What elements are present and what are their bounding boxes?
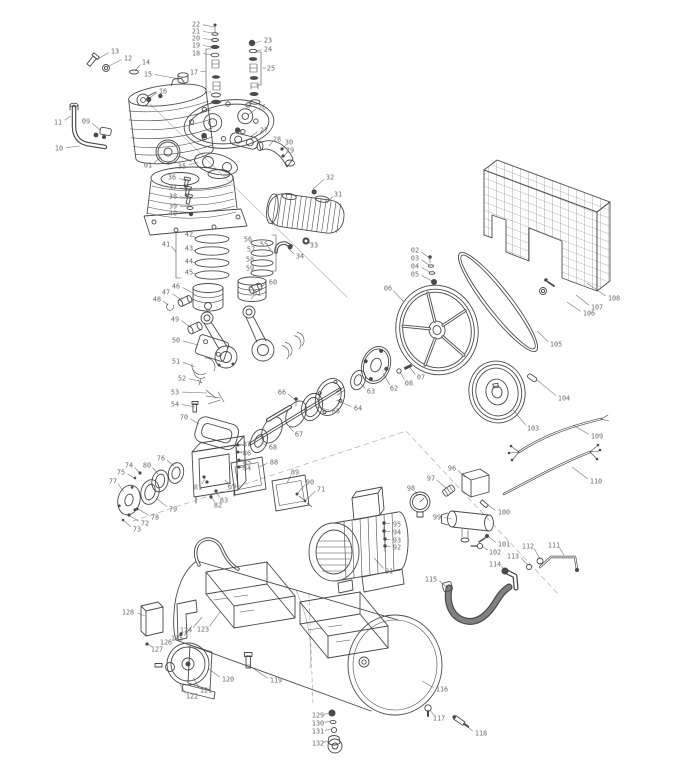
- svg-text:34: 34: [296, 252, 304, 260]
- connecting-rod-right: [243, 306, 274, 361]
- svg-text:57: 57: [247, 245, 255, 253]
- svg-text:22: 22: [192, 20, 200, 28]
- callout-08: 08: [400, 372, 413, 387]
- svg-text:125: 125: [171, 634, 183, 642]
- svg-text:69: 69: [228, 482, 236, 490]
- callout-71: 71: [306, 485, 325, 500]
- belt-guard: [484, 160, 610, 295]
- svg-text:127: 127: [151, 645, 163, 653]
- svg-text:53: 53: [171, 388, 179, 396]
- svg-text:129: 129: [312, 711, 324, 719]
- svg-text:33: 33: [310, 241, 318, 249]
- callout-94: 94: [385, 528, 401, 536]
- piston-left: [193, 284, 223, 312]
- pressure-switch: [141, 602, 163, 636]
- callout-68: 68: [262, 443, 277, 451]
- filler-bolt: [86, 53, 188, 83]
- check-valve: [442, 500, 494, 549]
- head-gasket: [192, 149, 240, 179]
- svg-text:17: 17: [190, 68, 198, 76]
- svg-text:51: 51: [172, 357, 180, 365]
- svg-text:24: 24: [264, 45, 272, 53]
- callout-42: 42: [185, 230, 196, 238]
- svg-text:132: 132: [312, 739, 324, 747]
- callout-112: 112: [522, 542, 540, 559]
- svg-text:05: 05: [411, 270, 419, 278]
- callout-22: 22: [192, 20, 214, 28]
- svg-text:64: 64: [354, 404, 362, 412]
- svg-text:71: 71: [317, 485, 325, 493]
- callout-70: 70: [180, 413, 199, 424]
- callout-57: 57: [247, 245, 255, 253]
- flywheel-bolt-set: [428, 255, 437, 285]
- svg-text:56: 56: [244, 235, 252, 243]
- svg-text:114: 114: [489, 560, 501, 568]
- oil-pipe: [70, 103, 112, 147]
- callout-93: 93: [385, 536, 401, 544]
- flywheel: [386, 276, 487, 383]
- axle-bolt: [245, 653, 253, 669]
- svg-text:108: 108: [608, 294, 620, 302]
- svg-text:90: 90: [306, 478, 314, 486]
- svg-text:96: 96: [448, 464, 456, 472]
- callout-66: 66: [278, 388, 294, 399]
- svg-text:11: 11: [54, 118, 62, 126]
- callout-34: 34: [289, 249, 304, 260]
- svg-text:26: 26: [258, 103, 266, 111]
- svg-text:16: 16: [159, 87, 167, 95]
- svg-text:20: 20: [192, 34, 200, 42]
- callout-131: 131: [312, 727, 331, 735]
- callout-69: 69: [225, 480, 236, 490]
- svg-text:46: 46: [172, 282, 180, 290]
- svg-text:10: 10: [55, 144, 63, 152]
- callout-50: 50: [172, 336, 198, 345]
- callout-09: 09: [82, 117, 100, 130]
- callout-92: 92: [386, 543, 401, 551]
- wrist-pin: [177, 295, 193, 307]
- callout-102: 102: [482, 546, 501, 556]
- pressure-gauge: [410, 492, 430, 517]
- svg-text:95: 95: [393, 520, 401, 528]
- callout-76: 76: [157, 454, 174, 466]
- callout-45: 45: [185, 268, 196, 276]
- callout-15: 15: [144, 70, 180, 79]
- hub-bolts: [397, 364, 412, 373]
- svg-text:77: 77: [109, 477, 117, 485]
- svg-text:45: 45: [185, 268, 193, 276]
- svg-text:117: 117: [433, 714, 445, 722]
- svg-text:99: 99: [433, 513, 441, 521]
- svg-text:83: 83: [220, 496, 228, 504]
- callout-89: 89: [287, 468, 299, 483]
- callout-98: 98: [407, 484, 418, 496]
- svg-text:85: 85: [243, 458, 251, 466]
- callout-43: 43: [185, 244, 196, 252]
- callout-60: 60: [260, 278, 277, 287]
- callout-85: 85: [239, 458, 251, 466]
- svg-text:44: 44: [185, 257, 193, 265]
- svg-text:105: 105: [550, 340, 562, 348]
- svg-text:70: 70: [180, 413, 188, 421]
- svg-text:14: 14: [142, 58, 150, 66]
- callout-49: 49: [171, 315, 189, 326]
- callout-62: 62: [383, 373, 398, 392]
- svg-text:02: 02: [411, 246, 419, 254]
- svg-text:08: 08: [405, 379, 413, 387]
- svg-text:65: 65: [332, 407, 340, 415]
- svg-text:54: 54: [171, 400, 179, 408]
- svg-text:81: 81: [194, 483, 202, 491]
- svg-text:37: 37: [169, 183, 177, 191]
- svg-text:59: 59: [246, 264, 254, 272]
- svg-text:29: 29: [286, 146, 294, 154]
- callout-41: 41: [162, 240, 176, 252]
- svg-text:107: 107: [591, 303, 603, 311]
- svg-text:47: 47: [162, 288, 170, 296]
- svg-text:52: 52: [178, 374, 186, 382]
- svg-text:32: 32: [326, 173, 334, 181]
- svg-text:86: 86: [243, 449, 251, 457]
- callout-115: 115: [425, 575, 448, 588]
- callout-48: 48: [153, 295, 168, 305]
- svg-text:87: 87: [243, 440, 251, 448]
- svg-text:128: 128: [122, 608, 134, 616]
- cylinder-bolts: [183, 177, 194, 216]
- svg-text:12: 12: [124, 54, 132, 62]
- svg-text:79: 79: [169, 505, 177, 513]
- svg-text:118: 118: [475, 729, 487, 737]
- svg-text:55: 55: [260, 240, 268, 248]
- svg-text:19: 19: [192, 41, 200, 49]
- svg-text:18: 18: [192, 49, 200, 57]
- unloader-valve: [462, 469, 489, 497]
- callout-46: 46: [172, 282, 193, 293]
- callout-104: 104: [537, 380, 570, 402]
- callout-21: 21: [192, 27, 213, 35]
- svg-text:97: 97: [427, 474, 435, 482]
- svg-text:130: 130: [312, 719, 324, 727]
- callout-61: 61: [251, 289, 261, 299]
- callout-128: 128: [122, 608, 145, 616]
- drain-caster: [328, 710, 342, 754]
- callout-105: 105: [537, 331, 562, 348]
- callout-17: 17: [190, 68, 206, 76]
- svg-text:42: 42: [185, 230, 193, 238]
- svg-text:68: 68: [269, 443, 277, 451]
- callout-101: 101: [489, 537, 510, 548]
- svg-text:40: 40: [169, 209, 177, 217]
- drive-belt: [450, 245, 547, 359]
- svg-text:98: 98: [407, 484, 415, 492]
- svg-text:73: 73: [133, 525, 141, 533]
- svg-text:15: 15: [144, 70, 152, 78]
- callout-63: 63: [360, 383, 375, 395]
- callout-18: 18: [192, 49, 212, 57]
- svg-text:13: 13: [111, 47, 119, 55]
- callout-32: 32: [313, 173, 334, 189]
- callout-05: 05: [411, 270, 432, 281]
- svg-text:131: 131: [312, 727, 324, 735]
- svg-text:102: 102: [489, 548, 501, 556]
- callout-56: 56: [244, 235, 252, 243]
- callout-123: 123: [197, 612, 220, 633]
- svg-text:23: 23: [264, 36, 272, 44]
- callout-103: 103: [513, 410, 539, 432]
- callout-29: 29: [284, 146, 294, 156]
- bearing-shells: [282, 331, 307, 359]
- svg-text:62: 62: [390, 384, 398, 392]
- svg-text:66: 66: [278, 388, 286, 396]
- svg-text:04: 04: [411, 262, 419, 270]
- svg-text:92: 92: [393, 543, 401, 551]
- callout-87: 87: [238, 440, 251, 448]
- cylinder-block: [144, 167, 247, 235]
- svg-text:03: 03: [411, 254, 419, 262]
- svg-text:36: 36: [168, 173, 176, 181]
- callout-19: 19: [192, 41, 212, 49]
- svg-text:61: 61: [253, 289, 261, 297]
- svg-text:38: 38: [169, 192, 177, 200]
- svg-text:31: 31: [334, 190, 342, 198]
- callout-58: 58: [246, 255, 254, 263]
- svg-text:48: 48: [153, 295, 161, 303]
- svg-text:110: 110: [590, 477, 602, 485]
- callout-54: 54: [171, 400, 195, 408]
- svg-text:28: 28: [273, 135, 281, 143]
- callout-73: 73: [124, 521, 141, 533]
- svg-text:35: 35: [178, 162, 186, 170]
- baffle-box-rear: [300, 592, 388, 658]
- valve-stack-left: [206, 24, 221, 105]
- callout-132: 132: [312, 739, 328, 747]
- svg-text:43: 43: [185, 244, 193, 252]
- callout-95: 95: [384, 520, 401, 528]
- callout-01: 01: [144, 157, 161, 169]
- callout-117: 117: [430, 710, 445, 722]
- callout-100: 100: [488, 505, 510, 516]
- crankcase-gasket: [193, 415, 241, 452]
- svg-text:60: 60: [269, 278, 277, 286]
- air-tank: [174, 539, 442, 715]
- callout-06: 06: [384, 284, 404, 302]
- svg-text:07: 07: [417, 373, 425, 381]
- callout-127: 127: [148, 644, 163, 653]
- svg-text:76: 76: [157, 454, 165, 462]
- callout-86: 86: [238, 449, 251, 457]
- callout-51: 51: [172, 357, 195, 367]
- svg-text:119: 119: [270, 676, 282, 684]
- callout-14: 14: [135, 58, 150, 71]
- outlet-pipe: [527, 557, 580, 572]
- muffler-nut: [276, 237, 310, 252]
- callout-97: 97: [427, 474, 446, 488]
- callout-13: 13: [94, 47, 119, 61]
- svg-text:25: 25: [267, 64, 275, 72]
- svg-text:111: 111: [548, 541, 560, 549]
- valve-stack-right: [249, 40, 261, 104]
- callout-129: 129: [312, 711, 329, 719]
- svg-text:123: 123: [197, 625, 209, 633]
- svg-text:89: 89: [291, 468, 299, 476]
- svg-text:93: 93: [393, 536, 401, 544]
- svg-text:112: 112: [522, 542, 534, 550]
- svg-text:49: 49: [171, 315, 179, 323]
- svg-text:78: 78: [151, 513, 159, 521]
- callout-12: 12: [107, 54, 132, 67]
- svg-text:41: 41: [162, 240, 170, 248]
- callout-35: 35: [178, 162, 198, 170]
- svg-text:58: 58: [246, 255, 254, 263]
- svg-text:116: 116: [436, 685, 448, 693]
- svg-text:75: 75: [117, 468, 125, 476]
- callout-10: 10: [55, 144, 80, 152]
- svg-text:72: 72: [141, 519, 149, 527]
- callout-110: 110: [572, 467, 602, 485]
- callout-75: 75: [117, 468, 134, 478]
- callout-111: 111: [548, 541, 564, 555]
- callout-23: 23: [255, 36, 272, 44]
- baffle-box-front: [206, 562, 295, 628]
- svg-text:113: 113: [507, 552, 519, 560]
- svg-text:06: 06: [384, 284, 392, 292]
- svg-text:94: 94: [393, 528, 401, 536]
- svg-text:63: 63: [367, 387, 375, 395]
- svg-text:101: 101: [498, 540, 510, 548]
- callout-59: 59: [246, 264, 254, 272]
- svg-text:104: 104: [558, 394, 570, 402]
- motor-pulley: [463, 356, 531, 428]
- svg-text:67: 67: [295, 430, 303, 438]
- callout-11: 11: [54, 116, 71, 126]
- svg-text:09: 09: [82, 117, 90, 125]
- callout-44: 44: [185, 257, 196, 265]
- callout-33: 33: [308, 241, 318, 249]
- callout-52: 52: [178, 374, 199, 382]
- flywheel-hub: [356, 342, 395, 387]
- svg-text:50: 50: [172, 336, 180, 344]
- svg-text:21: 21: [192, 27, 200, 35]
- flex-hose: [442, 581, 509, 621]
- svg-text:01: 01: [144, 161, 152, 169]
- callout-20: 20: [192, 34, 213, 42]
- svg-text:88: 88: [270, 458, 278, 466]
- callout-53: 53: [171, 388, 207, 396]
- callout-119: 119: [251, 667, 282, 684]
- callout-130: 130: [312, 719, 330, 727]
- callout-74: 74: [125, 461, 139, 472]
- callout-79: 79: [156, 498, 177, 513]
- callout-120: 120: [209, 669, 234, 683]
- callout-67: 67: [289, 427, 303, 438]
- callout-36: 36: [168, 173, 186, 181]
- svg-text:91: 91: [385, 567, 393, 575]
- svg-text:103: 103: [527, 424, 539, 432]
- svg-text:74: 74: [125, 461, 133, 469]
- svg-text:100: 100: [498, 508, 510, 516]
- rod-bushing: [187, 321, 203, 334]
- svg-text:121: 121: [200, 686, 212, 694]
- svg-text:109: 109: [591, 432, 603, 440]
- svg-text:115: 115: [425, 575, 437, 583]
- svg-text:80: 80: [143, 461, 151, 469]
- callout-88: 88: [259, 458, 278, 467]
- callout-25: 25: [262, 64, 275, 72]
- svg-text:122: 122: [186, 692, 198, 700]
- svg-text:120: 120: [222, 675, 234, 683]
- svg-text:27: 27: [260, 126, 268, 134]
- callout-116: 116: [422, 681, 448, 693]
- callout-109: 109: [573, 425, 603, 440]
- exploded-parts-diagram: 0102030405060708091011121314151617181920…: [0, 0, 686, 768]
- svg-text:30: 30: [285, 138, 293, 146]
- shaft-key: [527, 373, 538, 382]
- bearing-plate: [195, 334, 230, 362]
- callout-16: 16: [148, 87, 167, 99]
